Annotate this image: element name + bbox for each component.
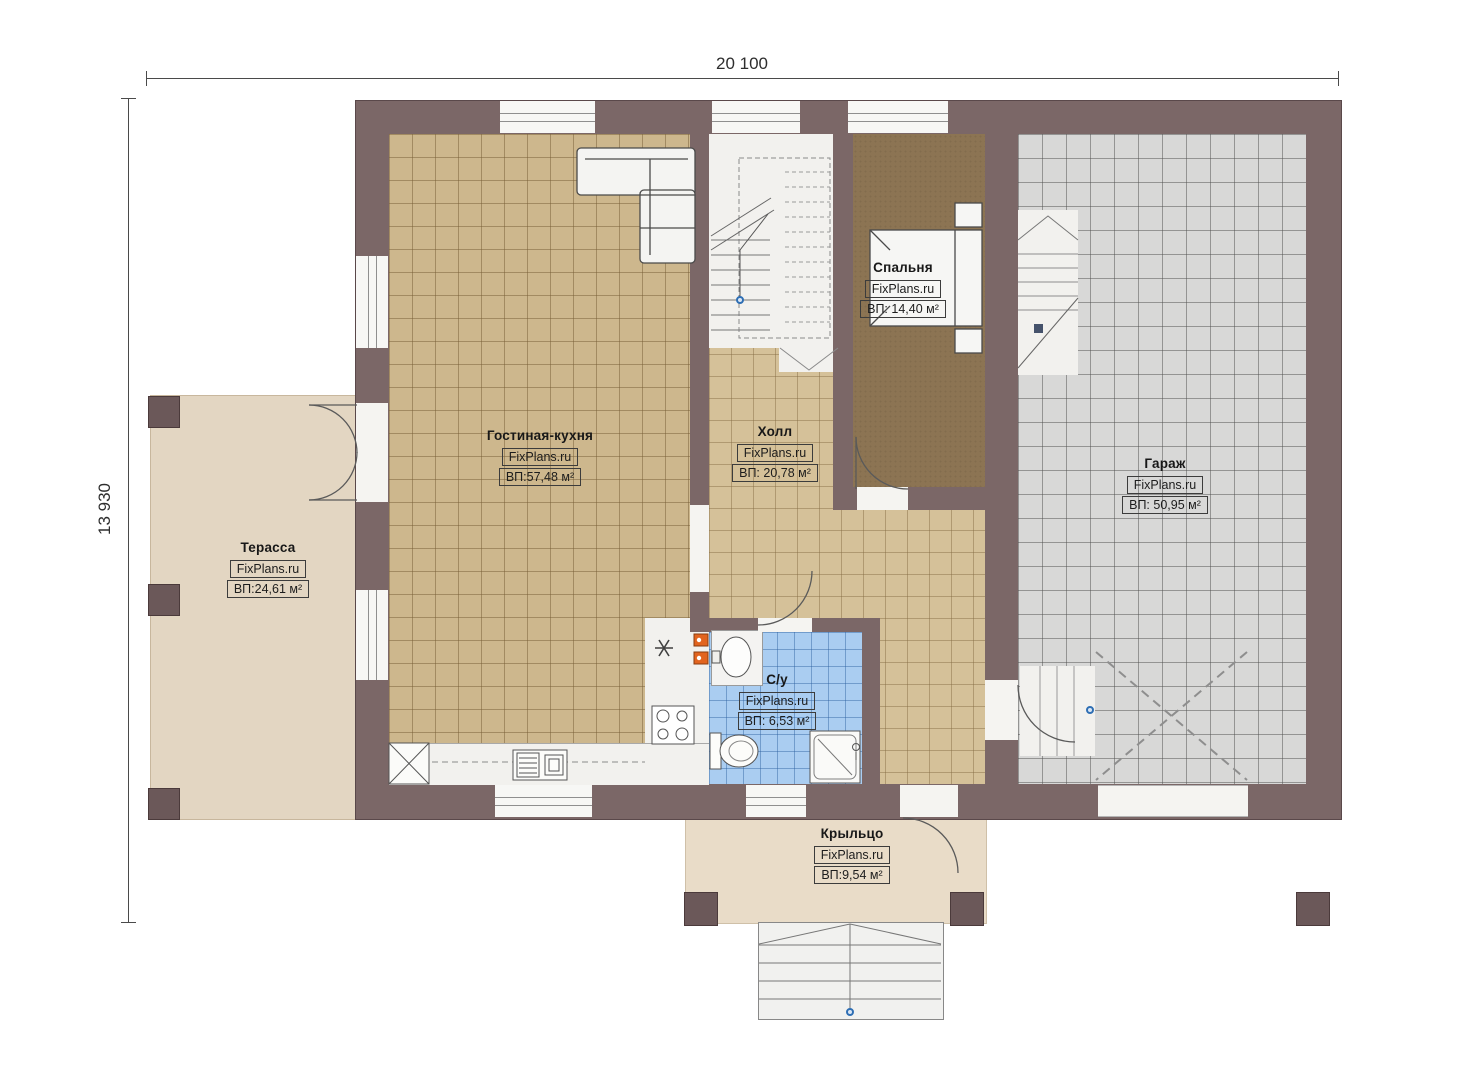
room-name: Гостиная-кухня [487, 428, 593, 443]
room-label-hall: Холл FixPlans.ru ВП: 20,78 м² [695, 424, 855, 482]
wall-bathroom-right [862, 618, 880, 784]
room-label-bedroom: Спальня FixPlans.ru ВП: 14,40 м² [823, 260, 983, 318]
window-living-left-lower [356, 590, 388, 680]
terrace-post [148, 584, 180, 616]
floor-plan-canvas: 20 100 13 930 [0, 0, 1474, 1080]
dimension-tick [146, 71, 147, 86]
watermark: FixPlans.ru [1127, 476, 1204, 494]
garage-entry-steps [1020, 666, 1095, 756]
window-kitchen-bottom [495, 785, 592, 817]
dimension-width-label: 20 100 [692, 54, 792, 74]
room-area: ВП: 50,95 м² [1122, 496, 1208, 514]
window-stair-top [712, 101, 800, 133]
porch-post [684, 892, 718, 926]
watermark: FixPlans.ru [814, 846, 891, 864]
room-label-bathroom: С/у FixPlans.ru ВП: 6,53 м² [697, 672, 857, 730]
room-name: Крыльцо [821, 826, 884, 841]
marker-dot [1086, 706, 1094, 714]
marker-dot [846, 1008, 854, 1016]
room-area: ВП: 6,53 м² [738, 712, 817, 730]
opening-bathroom-door [758, 618, 812, 632]
opening-living-hall [690, 505, 709, 592]
watermark: FixPlans.ru [739, 692, 816, 710]
window-living-left-upper [356, 256, 388, 348]
window-living-top [500, 101, 595, 133]
kitchen-floor-strip [389, 743, 709, 785]
room-label-terrace: Терасса FixPlans.ru ВП:24,61 м² [188, 540, 348, 598]
watermark: FixPlans.ru [865, 280, 942, 298]
room-area: ВП:57,48 м² [499, 468, 581, 486]
watermark: FixPlans.ru [502, 448, 579, 466]
dimension-tick [121, 98, 136, 99]
corner-post [1296, 892, 1330, 926]
dimension-tick [1338, 71, 1339, 86]
opening-hall-garage-door [985, 680, 1018, 740]
wall-bedroom-bottom-left [833, 487, 857, 510]
window-bathroom-bottom [746, 785, 806, 817]
room-name: С/у [766, 672, 788, 687]
dimension-tick [121, 922, 136, 923]
porch-post [950, 892, 984, 926]
room-name: Гараж [1144, 456, 1185, 471]
room-label-garage: Гараж FixPlans.ru ВП: 50,95 м² [1085, 456, 1245, 514]
room-name: Холл [758, 424, 793, 439]
opening-bedroom-door [857, 487, 908, 510]
terrace-post [148, 396, 180, 428]
terrace-floor [150, 395, 359, 820]
dimension-line-top [146, 78, 1338, 79]
marker-dot [736, 296, 744, 304]
window-bedroom-top [848, 101, 948, 133]
dimension-height-label: 13 930 [95, 464, 115, 554]
opening-entry-door [900, 785, 958, 817]
entrance-steps [758, 922, 944, 1020]
watermark: FixPlans.ru [230, 560, 307, 578]
watermark: FixPlans.ru [737, 444, 814, 462]
opening-garage-gate [1098, 785, 1248, 817]
room-area: ВП: 14,40 м² [860, 300, 946, 318]
room-name: Спальня [873, 260, 933, 275]
wall-bedroom-bottom-right [908, 487, 985, 510]
staircase-area [709, 134, 838, 348]
room-area: ВП:9,54 м² [814, 866, 889, 884]
room-label-living: Гостиная-кухня FixPlans.ru ВП:57,48 м² [460, 428, 620, 486]
room-label-porch: Крыльцо FixPlans.ru ВП:9,54 м² [772, 826, 932, 884]
room-name: Терасса [241, 540, 296, 555]
garage-staircase [1018, 210, 1078, 375]
room-area: ВП:24,61 м² [227, 580, 309, 598]
staircase-landing-tab [779, 348, 838, 372]
terrace-post [148, 788, 180, 820]
room-area: ВП: 20,78 м² [732, 464, 818, 482]
opening-terrace-double-door [356, 403, 388, 502]
dimension-line-left [128, 98, 129, 922]
